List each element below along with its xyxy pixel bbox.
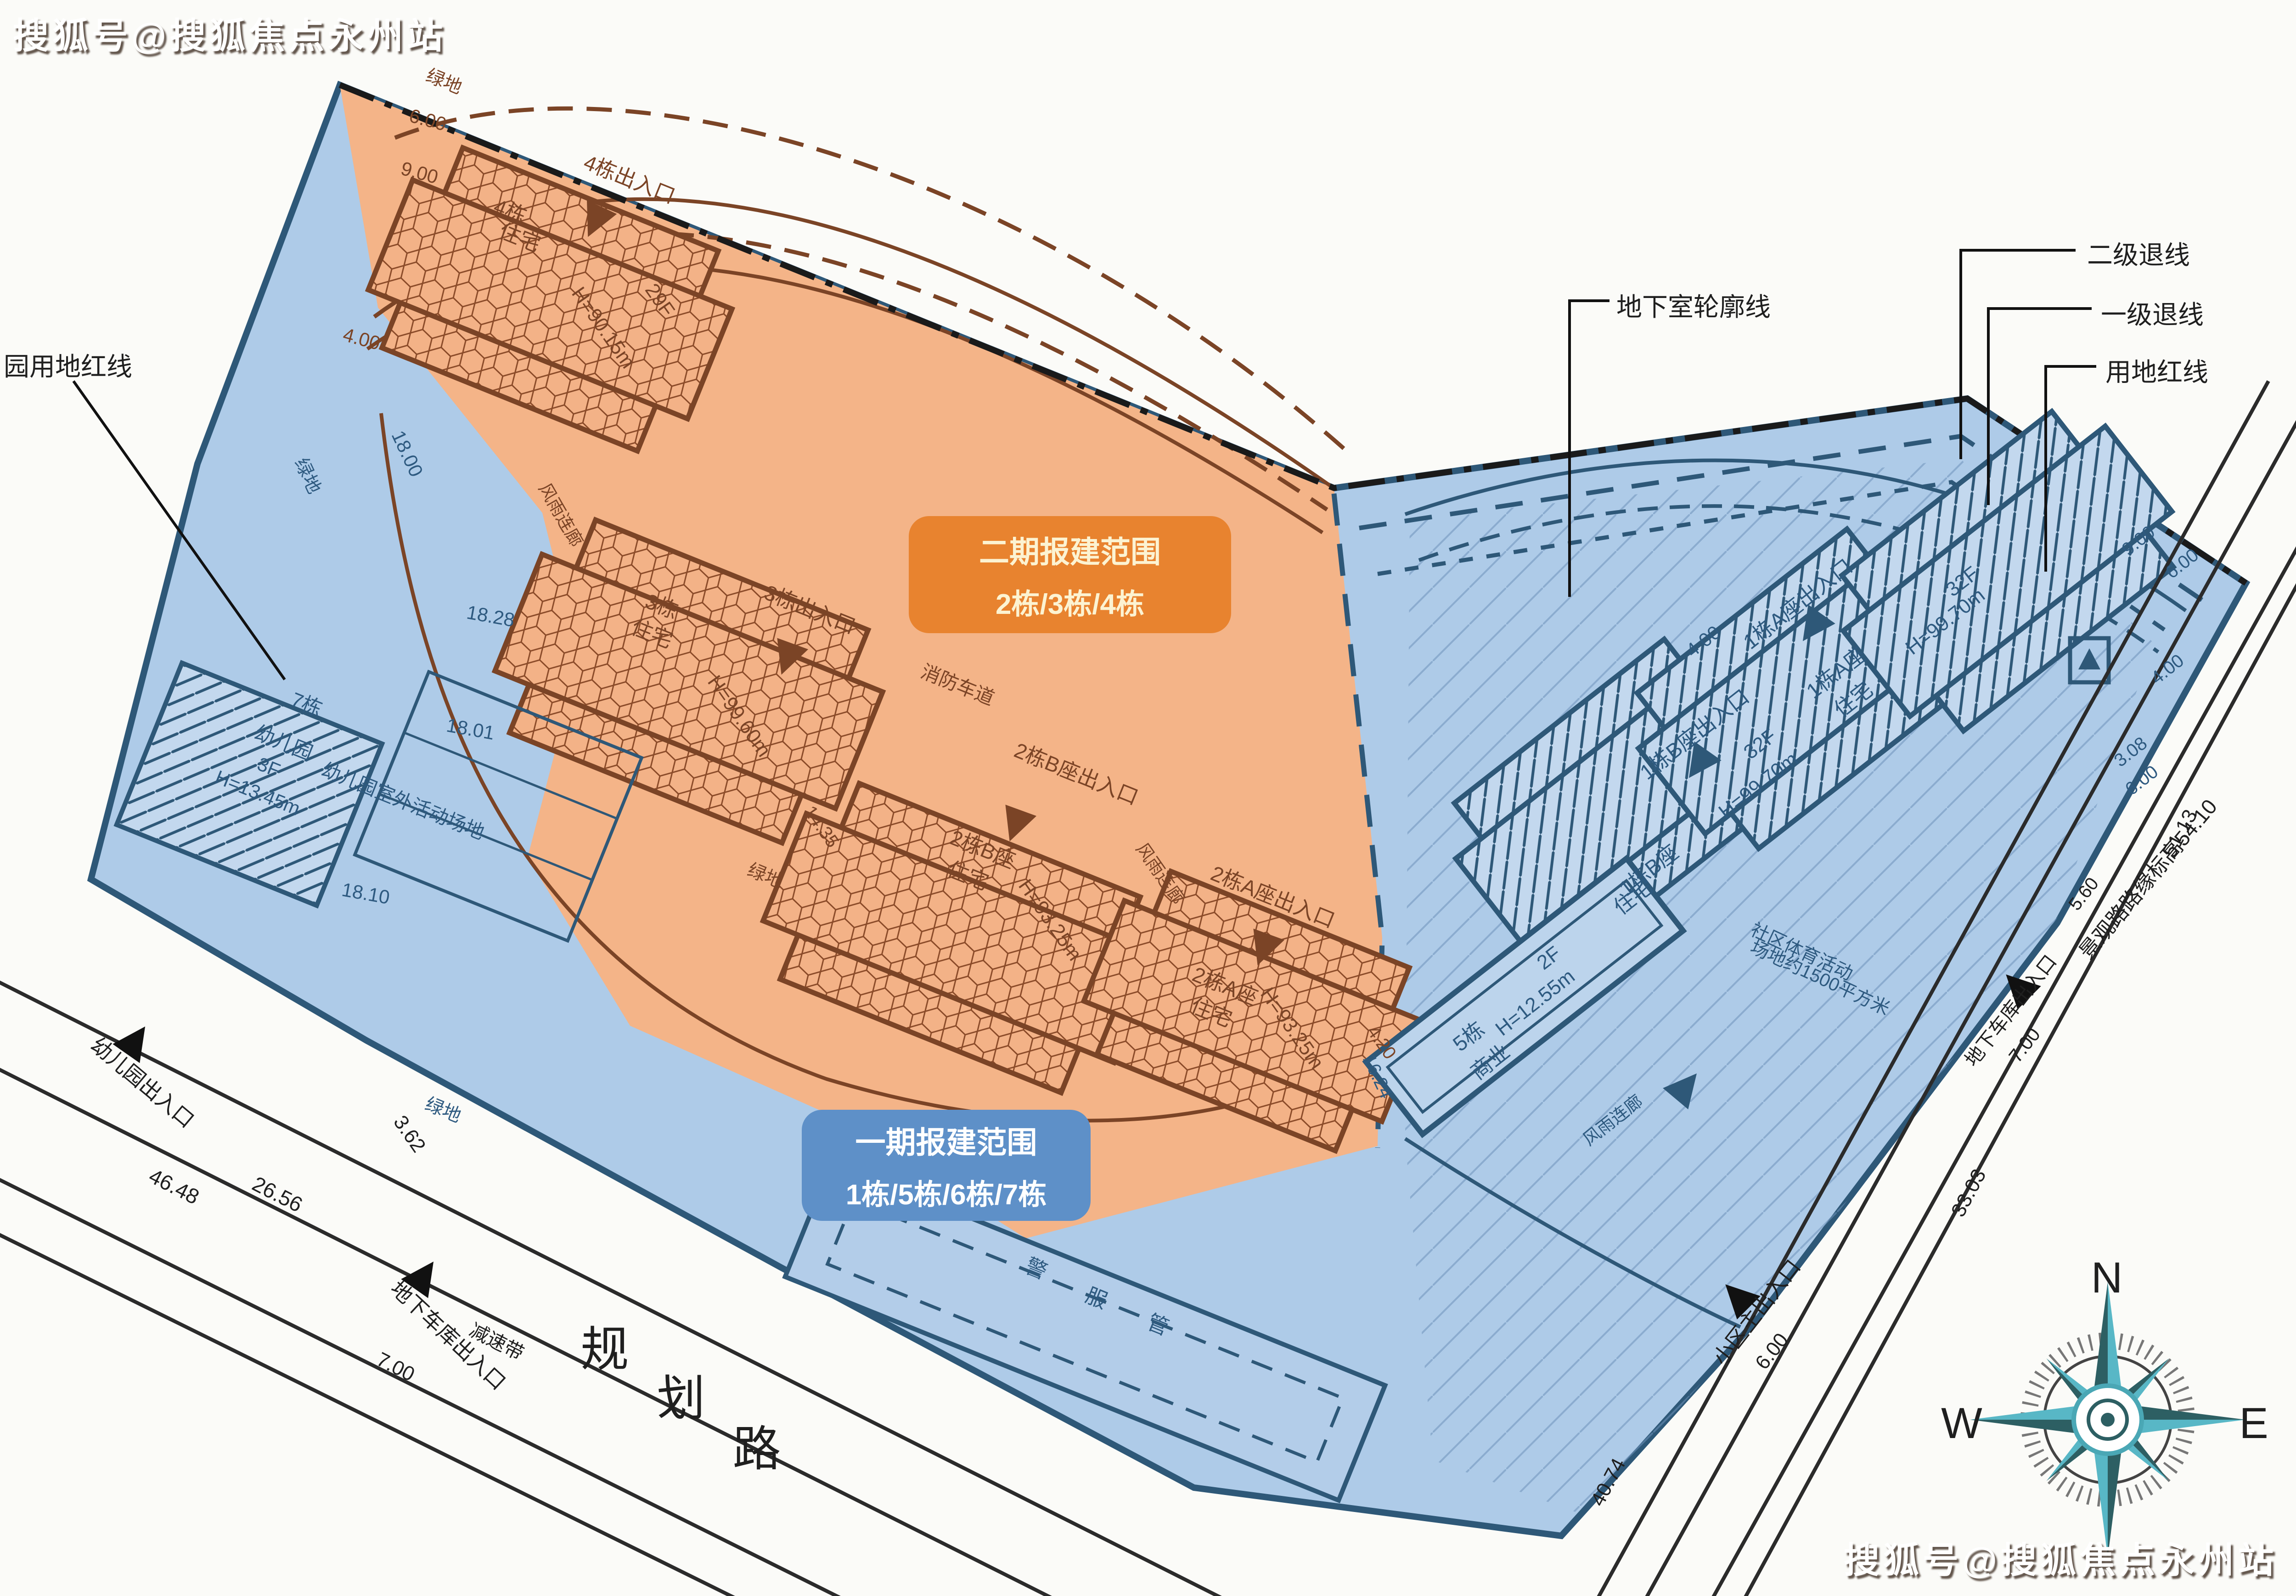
map-label: 绿地 bbox=[423, 66, 465, 98]
map-label: 3.62 bbox=[389, 1112, 430, 1157]
map-label: 划 bbox=[657, 1372, 705, 1426]
phase1-legend-buildings: 1栋/5栋/6栋/7栋 bbox=[846, 1171, 1047, 1213]
site-plan-page: 二级退线一级退线用地红线地下室轮廓线园用地红线规划路NWE幼儿园出入口46.48… bbox=[0, 0, 2296, 1596]
phase1-legend-title: 一期报建范围 bbox=[855, 1118, 1037, 1162]
map-label: 一级退线 bbox=[2101, 300, 2204, 329]
site-plan-drawing: 二级退线一级退线用地红线地下室轮廓线园用地红线规划路NWE幼儿园出入口46.48… bbox=[0, 0, 2296, 1596]
map-label: 路 bbox=[732, 1422, 781, 1476]
map-label: N bbox=[2091, 1253, 2123, 1302]
watermark-bottom-right: 搜狐号@搜狐焦点永州站 bbox=[1844, 1532, 2277, 1583]
map-label: 33.03 bbox=[1947, 1165, 1991, 1220]
map-label: 绿地 bbox=[422, 1094, 464, 1127]
map-label: 地下室轮廓线 bbox=[1616, 292, 1771, 321]
map-label: 园用地红线 bbox=[4, 352, 132, 381]
map-label: 二级退线 bbox=[2087, 241, 2190, 270]
map-label: E bbox=[2239, 1399, 2268, 1448]
phase2-legend-box: 二期报建范围 2栋/3栋/4栋 bbox=[909, 516, 1231, 633]
map-label: 46.48 bbox=[145, 1163, 203, 1209]
map-label: 规 bbox=[580, 1323, 629, 1377]
compass-rose-icon bbox=[1970, 1282, 2245, 1557]
map-label: 幼儿园出入口 bbox=[86, 1033, 199, 1132]
phase2-legend-title: 二期报建范围 bbox=[979, 528, 1161, 572]
phase2-legend-buildings: 2栋/3栋/4栋 bbox=[996, 581, 1144, 622]
map-label: 6.00 bbox=[1751, 1329, 1793, 1374]
watermark-top-left: 搜狐号@搜狐焦点永州站 bbox=[13, 7, 446, 59]
map-label: 7.00 bbox=[373, 1348, 418, 1386]
map-label: 用地红线 bbox=[2105, 358, 2208, 387]
map-label: W bbox=[1941, 1399, 1982, 1448]
phase1-legend-box: 一期报建范围 1栋/5栋/6栋/7栋 bbox=[802, 1110, 1091, 1221]
